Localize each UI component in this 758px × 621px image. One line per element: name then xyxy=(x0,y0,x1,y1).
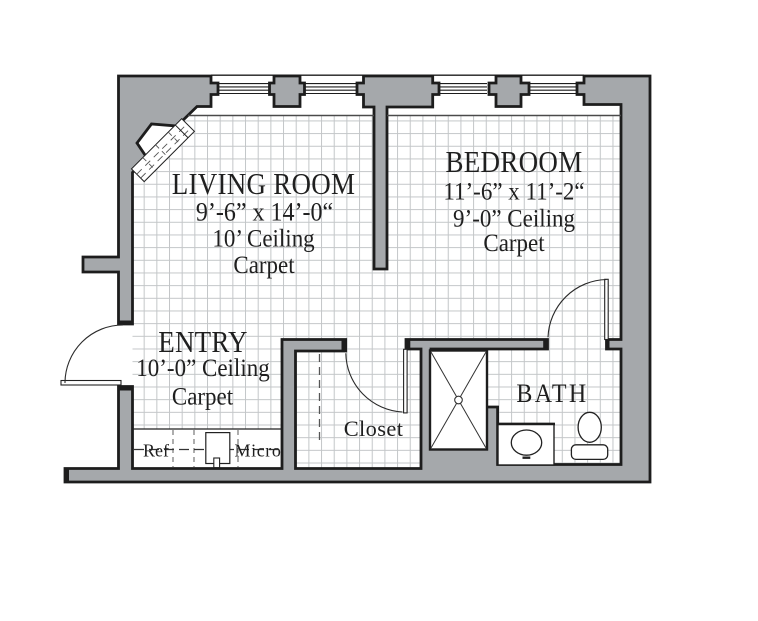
svg-text:BATH: BATH xyxy=(516,380,588,408)
svg-text:11’-6” x 11’-2“: 11’-6” x 11’-2“ xyxy=(443,178,584,206)
svg-text:BEDROOM: BEDROOM xyxy=(445,146,582,180)
svg-text:Carpet: Carpet xyxy=(172,383,234,411)
svg-text:Micro: Micro xyxy=(235,441,282,461)
svg-text:Carpet: Carpet xyxy=(233,251,295,279)
svg-text:10’-0” Ceiling: 10’-0” Ceiling xyxy=(136,354,269,382)
svg-text:Ref: Ref xyxy=(143,441,169,461)
svg-text:LIVING ROOM: LIVING ROOM xyxy=(172,168,355,202)
svg-text:9’-6” x 14’-0“: 9’-6” x 14’-0“ xyxy=(196,199,333,227)
svg-text:Closet: Closet xyxy=(344,416,404,441)
svg-text:Carpet: Carpet xyxy=(483,229,545,257)
svg-text:10’ Ceiling: 10’ Ceiling xyxy=(212,225,314,253)
